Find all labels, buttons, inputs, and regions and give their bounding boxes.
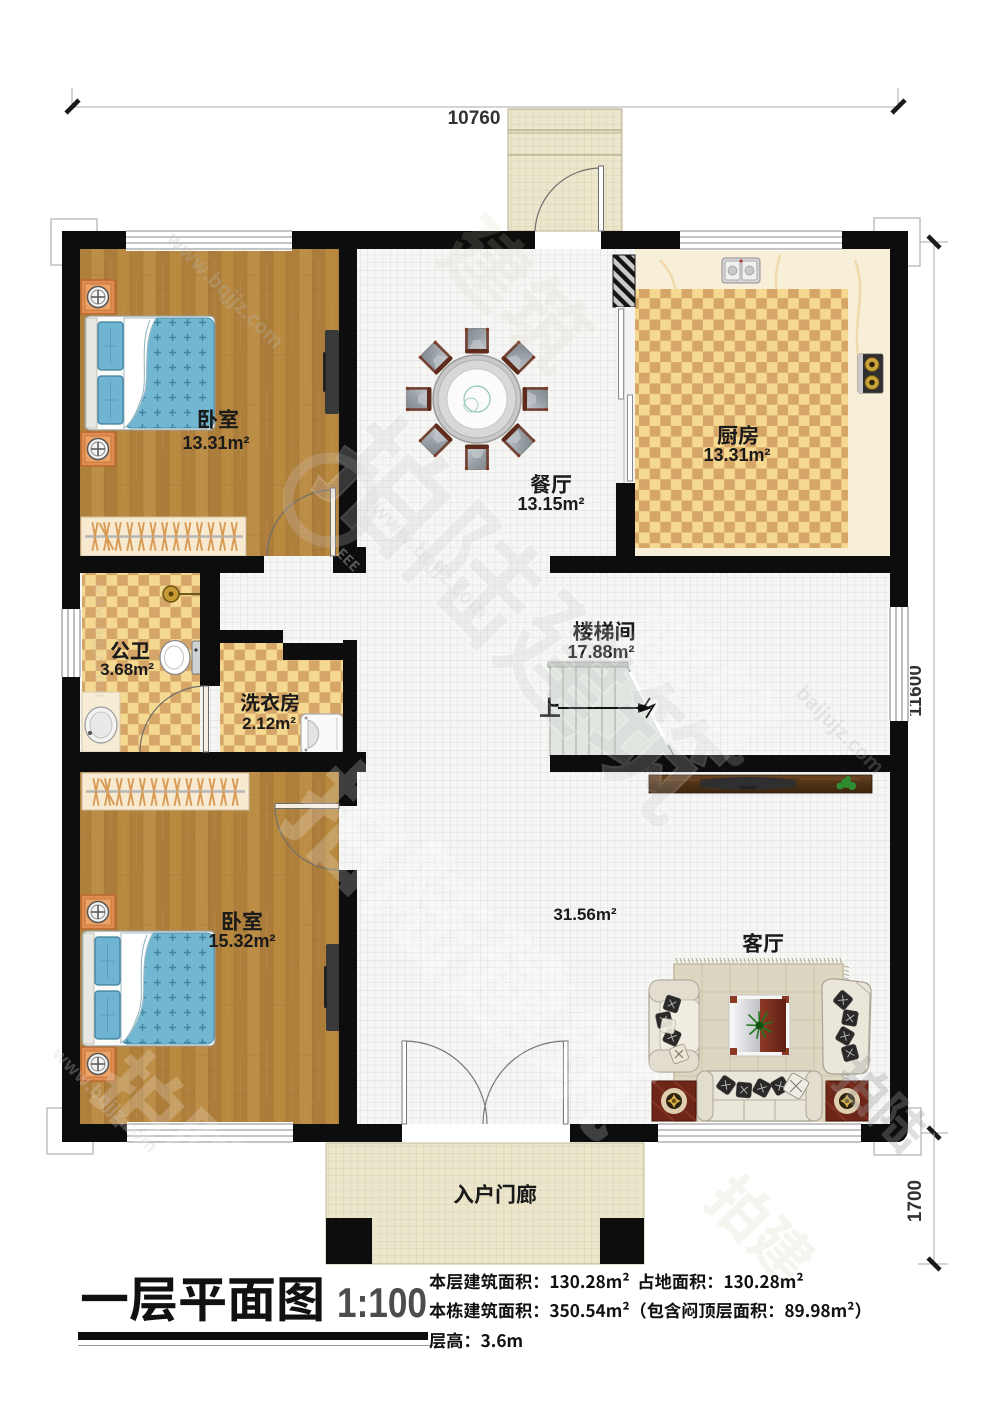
svg-text:2.12m²: 2.12m² xyxy=(242,714,296,733)
svg-text:13.31m²: 13.31m² xyxy=(703,445,770,465)
svg-text:15.32m²: 15.32m² xyxy=(208,931,275,951)
svg-text:31.56m²: 31.56m² xyxy=(553,905,617,924)
svg-text:13.31m²: 13.31m² xyxy=(182,433,249,453)
svg-text:13.15m²: 13.15m² xyxy=(517,494,584,514)
svg-text:1:100: 1:100 xyxy=(337,1279,427,1326)
svg-text:1700: 1700 xyxy=(905,1180,926,1222)
svg-text:3.68m²: 3.68m² xyxy=(100,660,154,679)
svg-text:10760: 10760 xyxy=(448,108,501,129)
